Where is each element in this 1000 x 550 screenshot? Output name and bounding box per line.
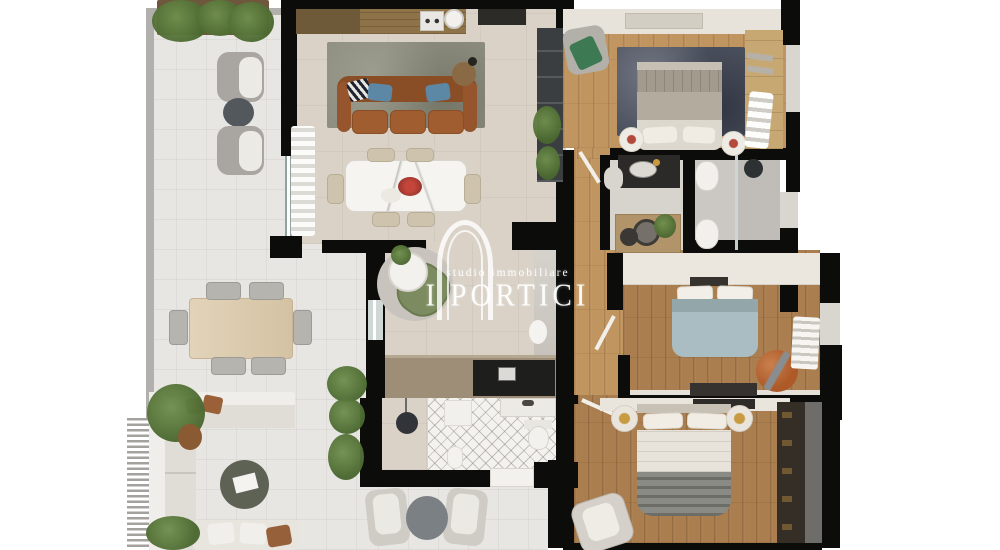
wall-light-bedroom2 — [820, 303, 840, 345]
terrace-plant — [327, 366, 367, 402]
outdoor-pillow-white — [207, 522, 235, 546]
terrace-dining-chair — [251, 357, 286, 375]
kitchen-shelf — [296, 9, 360, 34]
wall-top-living — [296, 0, 564, 9]
toilet-bowl — [528, 426, 549, 450]
wall-bedroom2-left-upper — [607, 253, 623, 310]
wall-light-right-mid — [780, 192, 798, 228]
floor-lamp — [468, 57, 477, 66]
curtain — [291, 126, 315, 236]
bedroom3-nightstand — [611, 405, 638, 432]
terrace-chair-cushion — [450, 493, 480, 535]
sofa-blue-pillow — [367, 83, 393, 102]
kitchen-sink — [444, 9, 464, 29]
master-bed-headboard — [637, 62, 722, 70]
kitchen-appliance — [478, 9, 526, 25]
watermark-logo: studio immobiliare I PORTICI — [390, 212, 580, 337]
bedroom3-pillow — [687, 412, 728, 429]
shower-glass — [735, 155, 738, 250]
wardrobe-gold-glints — [782, 410, 792, 530]
bidet — [695, 219, 719, 249]
terrace-plant — [328, 434, 364, 480]
master-nightstand — [619, 127, 644, 152]
bath1-stool — [604, 167, 623, 190]
terrace-armchair-cushion — [239, 131, 262, 171]
bedroom3-bed-headboard — [637, 404, 731, 413]
bath-vase — [447, 446, 463, 469]
dressing-plant — [654, 214, 676, 238]
master-nightstand — [721, 131, 746, 156]
bedroom3-pillow — [643, 412, 684, 429]
terrace-round-table — [406, 496, 448, 540]
master-closet-vent — [625, 13, 703, 29]
glass-door-entry-terrace — [368, 300, 383, 340]
wall-bath1-shower — [683, 153, 695, 250]
terrace-dining-chair — [206, 282, 241, 300]
terrace-side-table — [223, 98, 254, 127]
terrace-armchair-cushion — [239, 57, 262, 98]
bedroom2-console — [690, 383, 757, 396]
bath-mat — [444, 400, 472, 426]
dining-chair — [367, 148, 395, 162]
terrace-dining-chair — [211, 357, 246, 375]
wall-right-master — [786, 112, 800, 192]
shelf-plant — [533, 106, 561, 144]
terrace-dining-chair — [169, 310, 188, 345]
terrace-dining-chair — [249, 282, 284, 300]
bedroom3-bed-blanket — [637, 472, 731, 516]
outdoor-pillow-brown — [265, 524, 292, 548]
wall-bedroom3-left — [548, 460, 574, 548]
master-bed-pillow — [682, 125, 717, 145]
wall-right-bedroom2-upper — [820, 253, 840, 303]
wall-light-right-upper — [786, 45, 800, 112]
flowers-red — [398, 177, 422, 196]
master-bed-pillow — [642, 125, 679, 145]
plant-pot — [178, 424, 202, 450]
bedroom2-bed-fold — [672, 299, 758, 312]
floorplan-render: studio immobiliare I PORTICI — [0, 0, 1000, 550]
master-bed-blanket — [637, 92, 722, 120]
terrace-dining-chair — [293, 310, 312, 345]
wall-bath-bottom-left — [360, 470, 490, 487]
terrace-parapet-left — [146, 8, 154, 418]
bath-faucet — [522, 400, 534, 406]
bedroom3-nightstand — [726, 405, 753, 432]
shower-pendant-lamp — [744, 159, 763, 178]
sofa-seat-cushion — [428, 110, 464, 134]
toilet — [695, 161, 719, 191]
watermark-tagline: studio immobiliare — [428, 267, 588, 279]
sofa-blue-pillow — [425, 82, 451, 102]
shelf-plant — [536, 146, 560, 180]
kitchen2-device — [498, 367, 516, 381]
terrace-plant — [146, 516, 200, 550]
master-bed-quilt — [637, 70, 722, 92]
wall-top-right — [781, 0, 800, 45]
dressing-basin — [620, 228, 638, 246]
watermark-brand: I PORTICI — [420, 279, 595, 315]
sofa-seat-cushion — [352, 110, 388, 134]
radiator-towel-rack — [791, 316, 821, 369]
dining-chair — [327, 174, 344, 204]
wall-right-bedroom3 — [822, 400, 840, 548]
terrace-dining-table — [189, 298, 293, 359]
outdoor-pillow-white — [239, 522, 266, 545]
kitchen-cooktop — [420, 11, 444, 31]
dining-chair — [406, 148, 434, 162]
pendant-lamp — [396, 412, 418, 434]
dining-chair — [464, 174, 481, 204]
planter-plant — [228, 2, 274, 42]
terrace-chair-cushion — [372, 493, 402, 535]
terrace-plant — [329, 398, 365, 434]
wall-corner-terrace — [270, 236, 302, 258]
sofa-seat-cushion — [390, 110, 426, 134]
wall-bedroom2-left-lower — [618, 355, 630, 398]
sofa-arm-right — [463, 82, 477, 132]
bedroom3-bed-sheet — [637, 430, 731, 472]
bath1-faucet-gold — [653, 159, 660, 166]
door-step-bath — [490, 468, 534, 487]
flowers-white — [381, 188, 401, 203]
wall-bedroom3-top-left — [563, 395, 578, 404]
